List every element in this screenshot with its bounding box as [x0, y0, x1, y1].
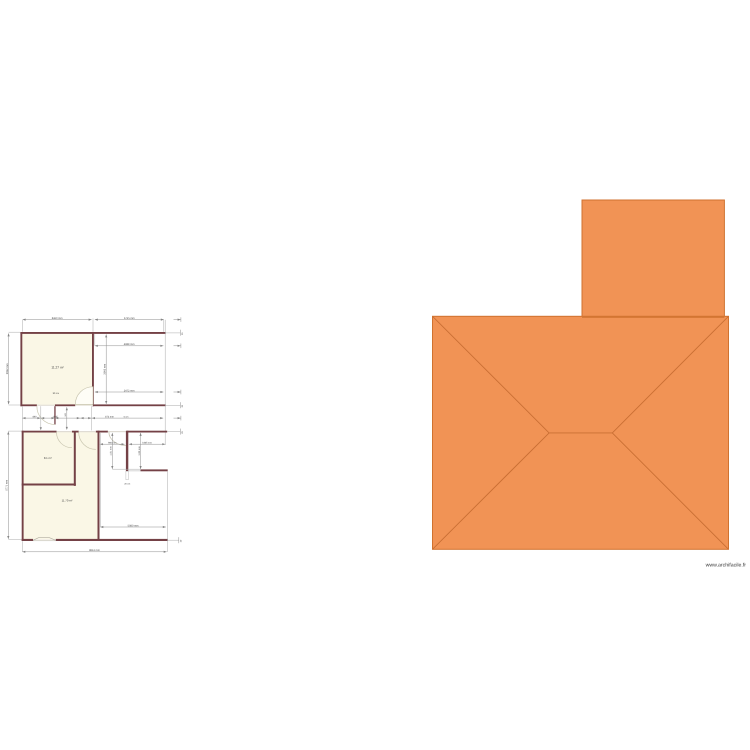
- svg-text:5 cm: 5 cm: [124, 416, 129, 419]
- svg-text:873 mm: 873 mm: [105, 416, 114, 419]
- svg-text:20 cm: 20 cm: [124, 482, 130, 485]
- svg-text:www.archifacile.fr: www.archifacile.fr: [706, 563, 747, 569]
- svg-text:20: 20: [181, 332, 184, 335]
- svg-text:11.70 m²: 11.70 m²: [62, 498, 73, 502]
- svg-text:20: 20: [179, 539, 182, 542]
- svg-text:3092 mm: 3092 mm: [103, 364, 106, 375]
- svg-text:4988 mm: 4988 mm: [124, 343, 135, 346]
- svg-text:8.1 m²: 8.1 m²: [44, 456, 52, 460]
- svg-text:20: 20: [181, 404, 184, 407]
- svg-text:20: 20: [181, 431, 184, 434]
- svg-text:1805 mm: 1805 mm: [142, 442, 152, 445]
- svg-text:11.27 m²: 11.27 m²: [51, 366, 63, 370]
- svg-text:8813 mm: 8813 mm: [89, 549, 100, 552]
- svg-text:1045: 1045: [53, 416, 59, 419]
- svg-text:1135 mm: 1135 mm: [138, 446, 141, 455]
- svg-text:1131 mm: 1131 mm: [110, 446, 113, 455]
- svg-text:8460 mm: 8460 mm: [52, 317, 63, 320]
- svg-text:90 cm: 90 cm: [53, 392, 59, 395]
- svg-text:5080 mm: 5080 mm: [128, 524, 139, 527]
- svg-text:3592 mm: 3592 mm: [6, 363, 9, 374]
- svg-text:6715 mm: 6715 mm: [124, 317, 135, 320]
- svg-text:5771 mm: 5771 mm: [6, 480, 9, 491]
- svg-text:2472 mm: 2472 mm: [124, 389, 135, 392]
- svg-text:890: 890: [33, 416, 38, 419]
